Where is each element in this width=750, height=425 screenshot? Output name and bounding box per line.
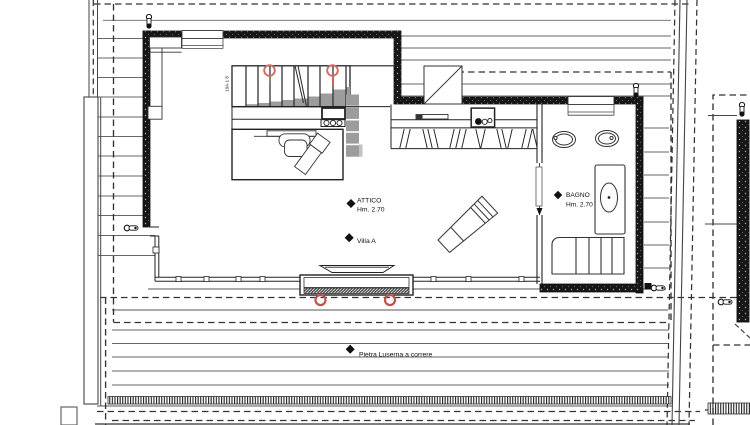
svg-text:ATTICO: ATTICO bbox=[357, 198, 381, 205]
svg-text:Hm. 2.70: Hm. 2.70 bbox=[357, 207, 385, 214]
svg-text:Villa A: Villa A bbox=[357, 238, 376, 245]
svg-text:Pietra Luserna a correre: Pietra Luserna a correre bbox=[359, 352, 433, 359]
svg-text:Hm. 2.70: Hm. 2.70 bbox=[566, 202, 593, 209]
svg-text:BAGNO: BAGNO bbox=[566, 192, 590, 199]
svg-text:19A-1 8: 19A-1 8 bbox=[225, 76, 230, 92]
